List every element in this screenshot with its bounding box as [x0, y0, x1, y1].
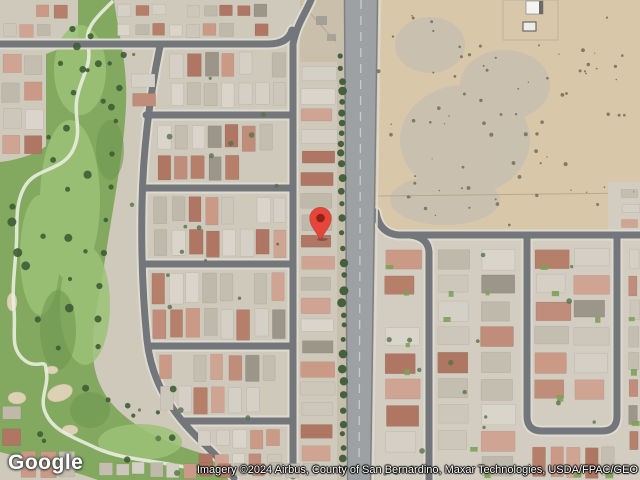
- marker-pin-body: [309, 207, 331, 240]
- marker-shadow: [316, 238, 327, 241]
- map-attribution: Imagery ©2024 Airbus, County of San Bern…: [197, 464, 638, 476]
- satellite-map[interactable]: Google Imagery ©2024 Airbus, County of S…: [0, 0, 640, 480]
- google-logo[interactable]: Google: [8, 451, 83, 475]
- marker-pin-dot: [316, 214, 325, 223]
- location-marker[interactable]: [307, 205, 334, 241]
